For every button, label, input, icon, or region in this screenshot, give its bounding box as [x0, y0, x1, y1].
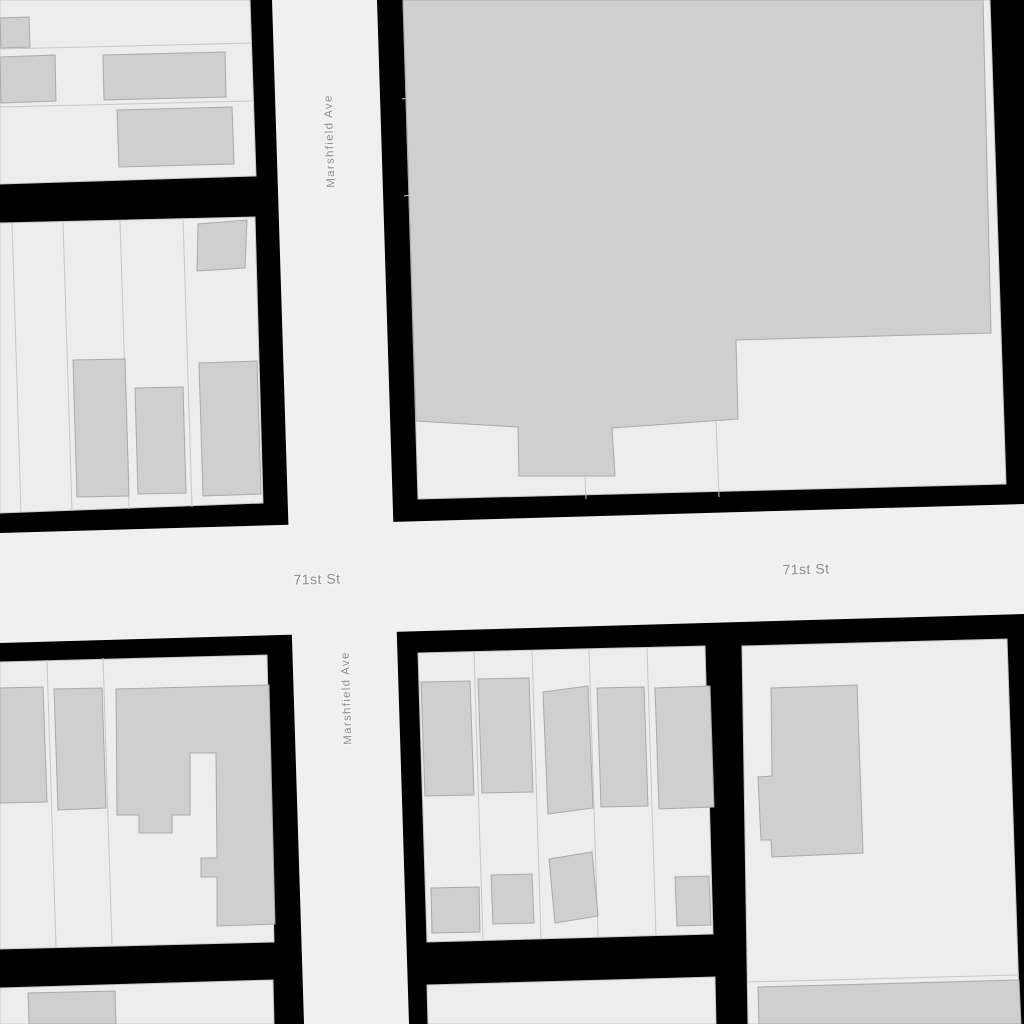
building-se-mid-1	[421, 681, 474, 796]
building-se-right-2	[758, 980, 1021, 1024]
map-canvas[interactable]: Marshfield AveMarshfield Ave71st St71st …	[0, 0, 1024, 1024]
building-se-mid-9	[675, 876, 711, 926]
building-se-mid-2	[478, 678, 533, 793]
block-bottom-mid	[427, 977, 716, 1024]
building-sw-2	[54, 688, 106, 810]
building-nw-top-1	[0, 17, 30, 48]
building-se-mid-6	[431, 887, 480, 933]
building-nw-mid-2	[73, 359, 129, 497]
building-nw-top-3	[103, 52, 226, 100]
building-nw-mid-4	[199, 361, 261, 496]
map-svg[interactable]: Marshfield AveMarshfield Ave71st St71st …	[0, 0, 1024, 1024]
building-se-mid-7	[491, 874, 534, 924]
building-nw-top-4	[117, 107, 234, 167]
building-nw-top-2	[0, 55, 56, 103]
building-nw-mid-3	[135, 387, 186, 494]
building-bottom-left-1	[28, 991, 116, 1024]
building-se-mid-3	[543, 686, 593, 814]
building-se-mid-4	[597, 687, 648, 807]
building-se-mid-8	[549, 852, 598, 923]
building-se-right-1	[758, 685, 863, 857]
building-sw-1	[0, 687, 47, 803]
street-label-71st-st: 71st St	[782, 560, 830, 577]
building-se-mid-5	[655, 686, 714, 809]
street-label-71st-st: 71st St	[293, 570, 341, 587]
building-nw-mid-1	[197, 220, 247, 271]
